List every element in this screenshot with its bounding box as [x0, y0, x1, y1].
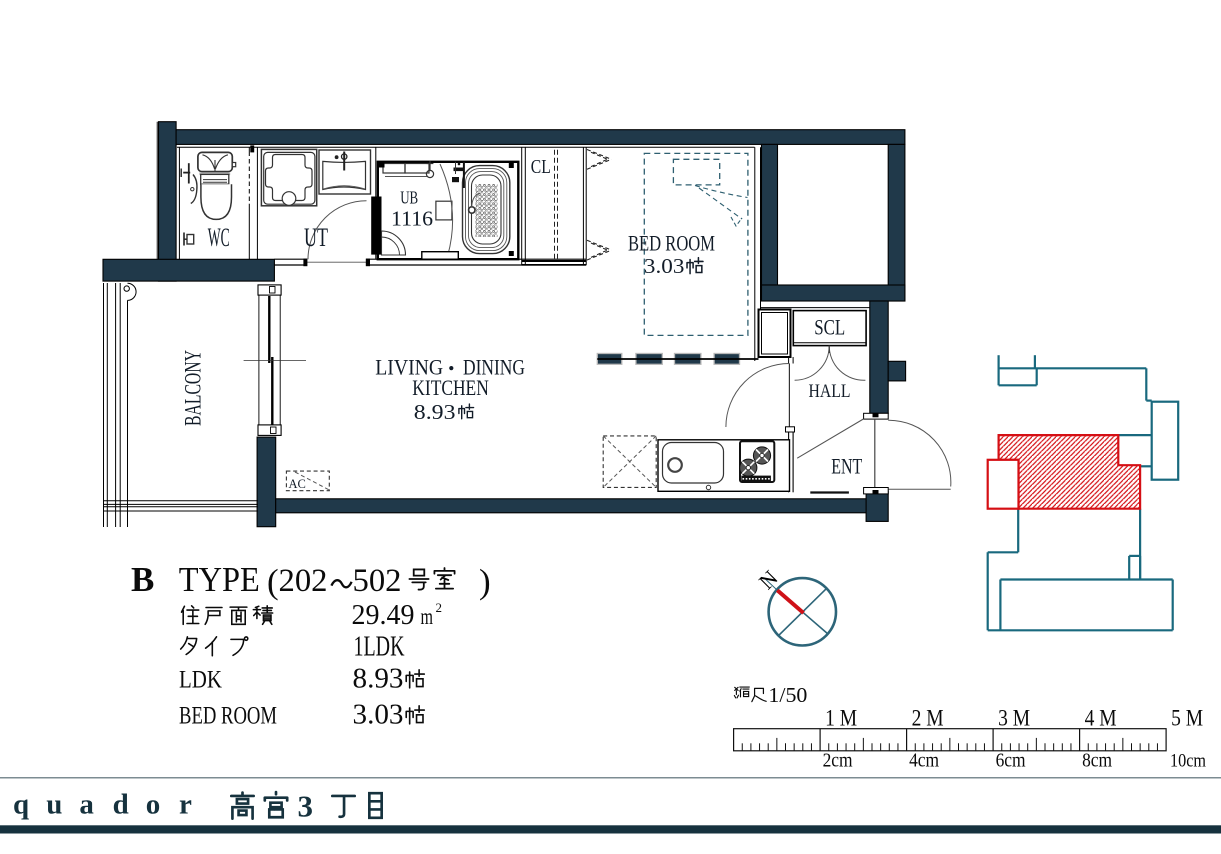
svg-text:LDK: LDK — [179, 667, 222, 694]
svg-text:8.93: 8.93 — [414, 400, 456, 424]
svg-text:d: d — [113, 789, 129, 821]
svg-text:r: r — [179, 789, 192, 821]
svg-text:1LDK: 1LDK — [354, 632, 405, 663]
svg-text:10cm: 10cm — [1170, 751, 1206, 772]
svg-text:1 M: 1 M — [825, 706, 857, 731]
svg-text:6cm: 6cm — [996, 750, 1026, 772]
svg-text:2: 2 — [436, 600, 443, 615]
svg-text:3: 3 — [298, 789, 314, 824]
svg-text:3 M: 3 M — [998, 706, 1030, 731]
svg-text:UT: UT — [304, 223, 328, 252]
svg-text:m: m — [421, 604, 434, 629]
svg-text:1116: 1116 — [391, 207, 433, 231]
svg-text:BED ROOM: BED ROOM — [179, 702, 277, 729]
svg-text:TYPE: TYPE — [179, 560, 260, 599]
svg-text:ENT: ENT — [831, 454, 862, 479]
svg-text:AC: AC — [289, 477, 306, 491]
svg-text:29.49: 29.49 — [352, 600, 415, 631]
svg-text:BALCONY: BALCONY — [181, 350, 206, 426]
svg-text:B: B — [131, 560, 154, 599]
svg-text:8cm: 8cm — [1082, 750, 1112, 772]
svg-text:2 M: 2 M — [912, 706, 944, 731]
svg-text:a: a — [79, 789, 94, 821]
svg-text:q: q — [13, 789, 29, 821]
svg-text:8.93: 8.93 — [353, 664, 404, 695]
svg-text:202: 202 — [279, 563, 328, 599]
svg-text:(: ( — [267, 562, 279, 601]
svg-text:KITCHEN: KITCHEN — [412, 375, 489, 400]
svg-text:502: 502 — [353, 563, 402, 599]
svg-text:1/50: 1/50 — [768, 683, 807, 707]
svg-text:UB: UB — [400, 188, 418, 208]
svg-text:4cm: 4cm — [909, 750, 939, 772]
svg-text:SCL: SCL — [814, 315, 845, 340]
svg-text:4 M: 4 M — [1085, 706, 1117, 731]
svg-text:): ) — [479, 562, 491, 601]
svg-text:BED ROOM: BED ROOM — [628, 231, 715, 256]
svg-text:3.03: 3.03 — [644, 254, 685, 278]
svg-text:3.03: 3.03 — [353, 699, 404, 730]
svg-text:5 M: 5 M — [1171, 706, 1203, 731]
svg-text:HALL: HALL — [809, 381, 851, 402]
svg-text:CL: CL — [531, 156, 551, 178]
svg-text:o: o — [146, 789, 161, 821]
svg-text:2cm: 2cm — [823, 750, 853, 772]
svg-text:WC: WC — [208, 223, 230, 252]
svg-text:u: u — [46, 789, 62, 821]
